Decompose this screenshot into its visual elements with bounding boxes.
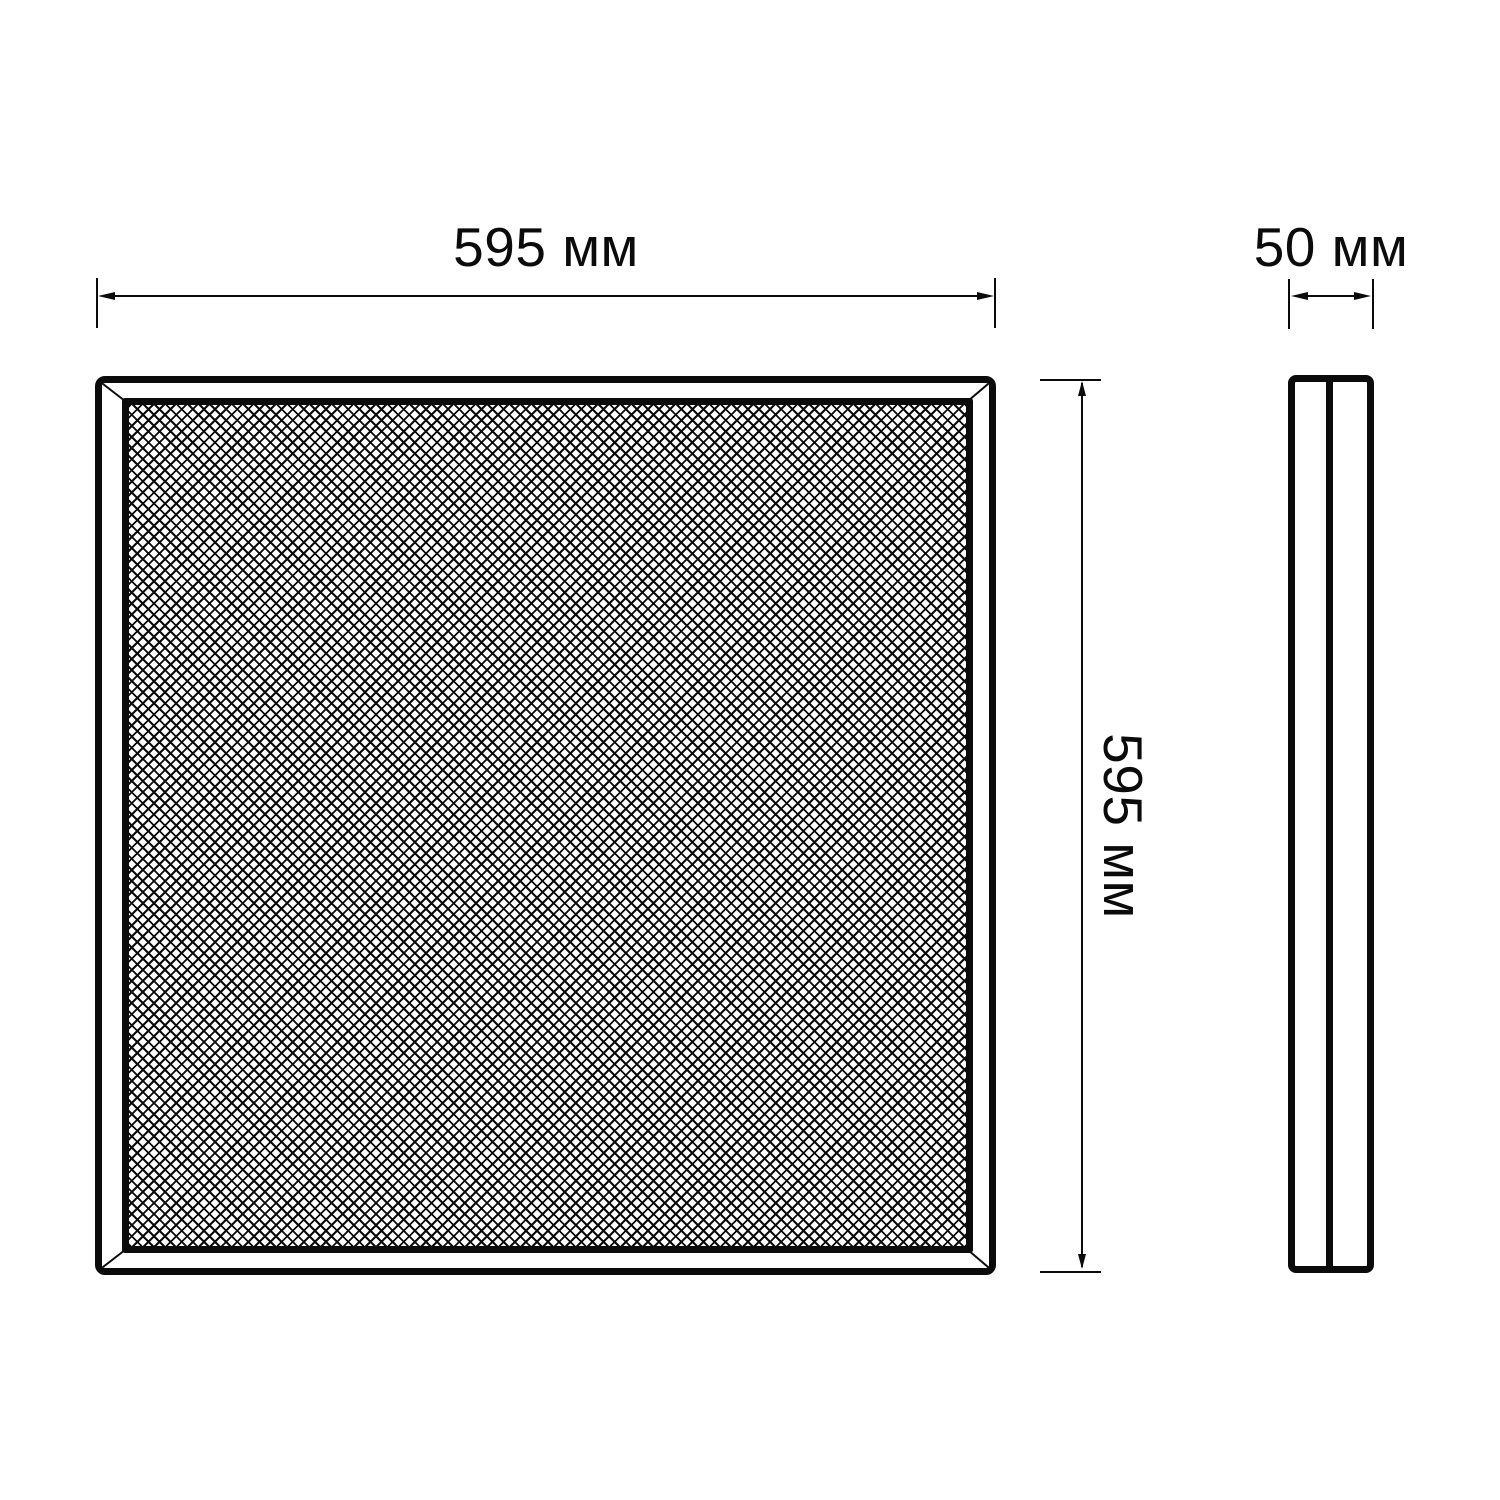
front-width-dimension-line-2 (108, 295, 984, 297)
front-height-dimension-label: 595 мм (1095, 733, 1150, 919)
arrowhead-depth-right-icon (1354, 292, 1371, 300)
extension-line-left (96, 278, 98, 328)
arrowhead-up-icon (1078, 381, 1086, 396)
arrowhead-depth-left-icon (1291, 292, 1308, 300)
extension-line-depth-right (1372, 279, 1374, 329)
extension-line-height-top (1040, 379, 1101, 381)
extension-line-right (994, 278, 996, 328)
panel-depth-dimension-label: 50 мм (1254, 220, 1409, 275)
extension-line-depth-left (1288, 279, 1290, 329)
arrowhead-down-icon (1078, 1254, 1086, 1269)
front-width-dimension-label: 595 мм (453, 220, 639, 275)
front-view-diffuser-mesh (122, 398, 973, 1253)
arrowhead-right-icon (977, 292, 994, 300)
arrowhead-left-icon (98, 292, 115, 300)
extension-line-height-bottom (1040, 1271, 1101, 1273)
side-view-divider-line (1326, 381, 1333, 1267)
panel-dimension-drawing: 595 мм 50 мм 595 мм (0, 0, 1500, 1500)
front-height-dimension-line (1081, 383, 1083, 1267)
